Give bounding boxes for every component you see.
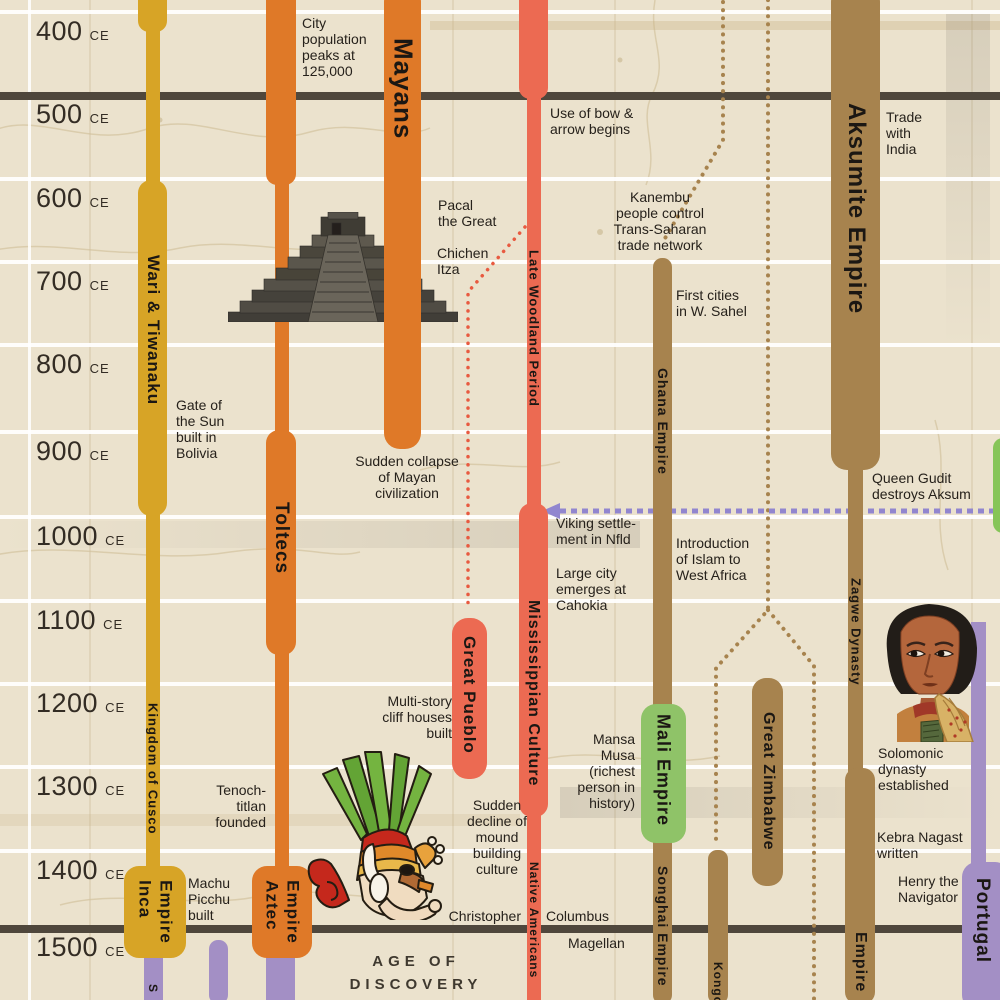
tick-label-1100: 1100CE xyxy=(36,605,123,636)
note-magellan: Magellan xyxy=(568,936,625,952)
note-gate-of-sun: Gate of the Sun built in Bolivia xyxy=(176,398,224,462)
tick-era: CE xyxy=(90,28,110,43)
tick-label-1500: 1500CE xyxy=(36,932,125,963)
note-city-population: City population peaks at 125,000 xyxy=(302,16,367,80)
woodland-wide-top xyxy=(519,0,548,99)
tick-year: 400 xyxy=(36,16,83,47)
label-zagwe-dynasty: Zagwe Dynasty xyxy=(849,578,864,686)
tick-year: 600 xyxy=(36,183,83,214)
label-kingdom-of-cusco: Kingdom of Cusco xyxy=(146,703,161,835)
label-aztec-empire: AztecEmpire xyxy=(262,880,303,944)
tick-era: CE xyxy=(103,617,123,632)
label-inca-empire: IncaEmpire xyxy=(135,880,176,944)
note-queen-gudit: Queen Gudit destroys Aksum xyxy=(872,471,971,503)
aztec-warrior-codex-drawing xyxy=(303,748,448,920)
ethiopian-icon-portrait xyxy=(877,598,989,742)
note-machu-picchu: Machu Picchu built xyxy=(188,876,230,924)
label-mayans: Mayans xyxy=(388,38,419,139)
timeline-poster: 400CE500CE600CE700CE800CE900CE1000CE1100… xyxy=(0,0,1000,1000)
tick-label-1400: 1400CE xyxy=(36,855,125,886)
label-aksumite-empire: Aksumite Empire xyxy=(842,103,870,314)
native-spine xyxy=(527,0,541,1000)
label-wari-tiwanaku: Wari & Tiwanaku xyxy=(143,255,163,405)
note-chichen-itza: Chichen Itza xyxy=(437,246,488,278)
note-mayan-collapse: Sudden collapse of Mayan civilization xyxy=(355,454,459,502)
teotihuacan-wide xyxy=(266,0,296,185)
tick-label-700: 700CE xyxy=(36,266,110,297)
label-mali-empire: Mali Empire xyxy=(653,714,674,826)
tick-year: 1500 xyxy=(36,932,98,963)
tick-era: CE xyxy=(90,195,110,210)
tick-year: 1000 xyxy=(36,521,98,552)
tick-year: 1300 xyxy=(36,771,98,802)
note-christopher: Christopher xyxy=(449,909,521,925)
note-columbus: Columbus xyxy=(546,909,609,925)
label-colonial-partial: S xyxy=(146,984,160,993)
label-portugal: Portugal xyxy=(971,878,993,963)
tick-year: 700 xyxy=(36,266,83,297)
label-late-woodland: Late Woodland Period xyxy=(527,250,542,407)
note-mound-decline: Sudden decline of mound building culture xyxy=(467,798,527,878)
age-of-discovery: AGE OF DISCOVERY xyxy=(350,951,483,996)
note-pacal: Pacal the Great xyxy=(438,198,496,230)
tick-era: CE xyxy=(105,944,125,959)
tick-era: CE xyxy=(105,700,125,715)
note-solomonic: Solomonic dynasty established xyxy=(878,746,949,794)
tick-era: CE xyxy=(90,278,110,293)
note-tenochtitlan: Tenoch- titlan founded xyxy=(215,783,266,831)
tick-label-800: 800CE xyxy=(36,349,110,380)
chichen-itza-pyramid-photo xyxy=(228,212,458,322)
tick-label-500: 500CE xyxy=(36,99,110,130)
label-inca-empire-line1: Inca xyxy=(135,880,155,944)
note-first-cities: First cities in W. Sahel xyxy=(676,288,747,320)
note-henry-navigator: Henry the Navigator xyxy=(898,874,959,906)
wari-wide-top xyxy=(138,0,167,32)
note-trade-india: Trade with India xyxy=(886,110,922,158)
note-islam: Introduction of Islam to West Africa xyxy=(676,536,749,584)
tick-era: CE xyxy=(105,867,125,882)
note-mansa-musa: Mansa Musa (richest person in history) xyxy=(577,732,635,812)
note-kanembu: Kanembu people control Trans-Saharan tra… xyxy=(614,190,707,254)
inca-colonial-tail xyxy=(144,956,163,1000)
tick-era: CE xyxy=(90,361,110,376)
tick-era: CE xyxy=(90,111,110,126)
colonial-bar-middle xyxy=(209,940,228,1000)
note-cahokia: Large city emerges at Cahokia xyxy=(556,566,626,614)
label-kongo: Kongo xyxy=(711,962,725,1000)
tick-label-1200: 1200CE xyxy=(36,688,125,719)
tick-label-1300: 1300CE xyxy=(36,771,125,802)
label-ethiopian-empire: Empire xyxy=(851,932,869,992)
tick-year: 800 xyxy=(36,349,83,380)
east-africa-green-edge xyxy=(993,438,1000,533)
tick-label-600: 600CE xyxy=(36,183,110,214)
note-bow-arrow: Use of bow & arrow begins xyxy=(550,106,633,138)
tick-year: 1200 xyxy=(36,688,98,719)
tick-era: CE xyxy=(105,783,125,798)
label-inca-empire-line2: Empire xyxy=(156,880,176,944)
label-aztec-empire-line2: Empire xyxy=(283,880,303,944)
note-cliff-houses: Multi-story cliff houses built xyxy=(382,694,452,742)
tick-year: 1400 xyxy=(36,855,98,886)
tick-label-400: 400CE xyxy=(36,16,110,47)
label-ghana-empire: Ghana Empire xyxy=(655,368,671,475)
note-kebra-nagast: Kebra Nagast written xyxy=(877,830,963,862)
label-great-pueblo: Great Pueblo xyxy=(459,636,479,754)
tick-year: 900 xyxy=(36,436,83,467)
chichen-to-pueblo-link xyxy=(468,227,525,610)
tick-label-1000: 1000CE xyxy=(36,521,125,552)
note-viking: Viking settle- ment in Nfld xyxy=(556,516,636,548)
label-aztec-empire-line1: Aztec xyxy=(262,880,282,944)
label-songhai-empire: Songhai Empire xyxy=(655,866,671,987)
tick-year: 1100 xyxy=(36,605,96,636)
tick-year: 500 xyxy=(36,99,83,130)
tick-label-900: 900CE xyxy=(36,436,110,467)
tick-era: CE xyxy=(105,533,125,548)
label-great-zimbabwe: Great Zimbabwe xyxy=(759,712,777,850)
label-mississippian: Mississippian Culture xyxy=(524,600,542,786)
tick-era: CE xyxy=(90,448,110,463)
label-native-americans: Native Americans xyxy=(527,862,541,978)
aztec-colonial-tail xyxy=(266,956,295,1000)
label-toltecs: Toltecs xyxy=(270,502,292,574)
